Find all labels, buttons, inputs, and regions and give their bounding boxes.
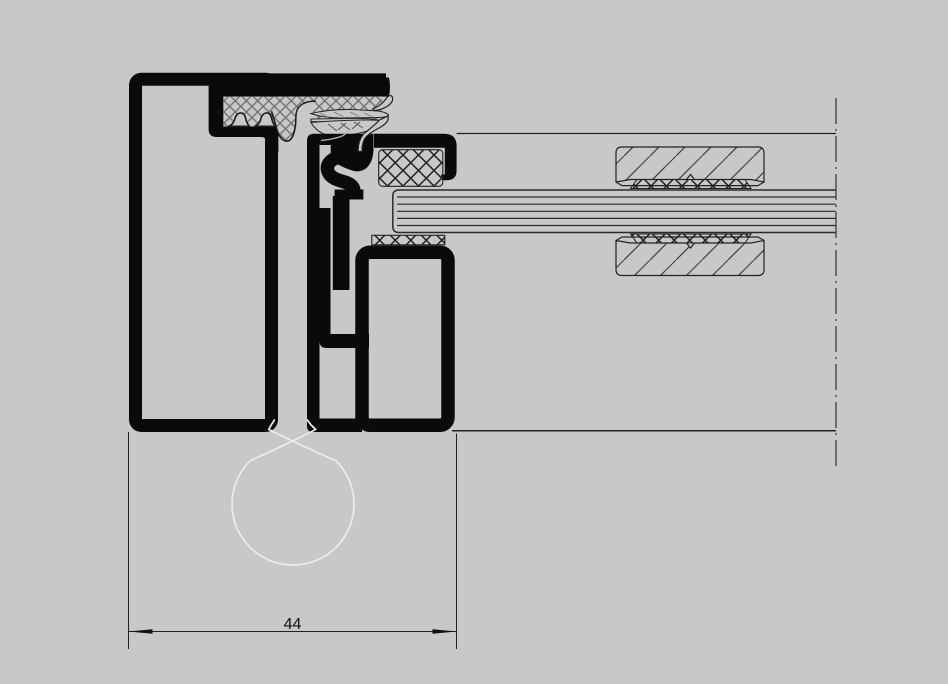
svg-text:44: 44 [284,616,302,633]
